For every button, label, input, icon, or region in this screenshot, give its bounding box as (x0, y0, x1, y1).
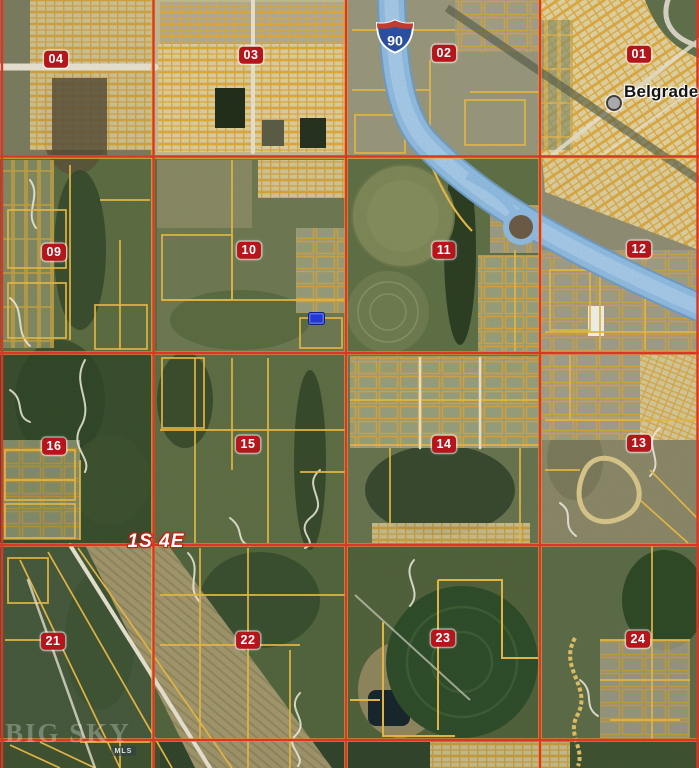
interstate-90-shield-icon: 90 (376, 19, 414, 54)
section-badge-09: 09 (42, 244, 66, 261)
section-badge-21: 21 (41, 633, 65, 650)
section-badge-11: 11 (432, 242, 455, 259)
section-badge-15: 15 (236, 436, 260, 453)
town-marker-dot[interactable] (606, 95, 622, 111)
section-badge-12: 12 (627, 241, 651, 258)
mls-watermark-text: BIG SKY (5, 718, 131, 749)
section-badge-04: 04 (44, 51, 68, 68)
section-badge-16: 16 (42, 438, 66, 455)
section-badge-23: 23 (431, 630, 455, 647)
property-marker-icon[interactable] (308, 312, 325, 325)
township-range-label: 1S 4E (128, 531, 185, 553)
section-badge-02: 02 (432, 45, 456, 62)
section-badge-03: 03 (239, 47, 263, 64)
satellite-map-view[interactable]: 04 03 02 01 09 10 11 12 16 15 14 13 21 2… (0, 0, 699, 768)
section-badge-14: 14 (432, 436, 456, 453)
mls-watermark-badge: MLS (111, 746, 136, 756)
section-badge-22: 22 (236, 632, 260, 649)
map-label-overlay: 04 03 02 01 09 10 11 12 16 15 14 13 21 2… (0, 0, 699, 768)
section-badge-24: 24 (626, 631, 650, 648)
shield-number-label: 90 (387, 34, 403, 50)
section-badge-01: 01 (627, 46, 651, 63)
section-badge-13: 13 (627, 435, 651, 452)
section-badge-10: 10 (237, 242, 261, 259)
town-label: Belgrade (624, 82, 698, 102)
